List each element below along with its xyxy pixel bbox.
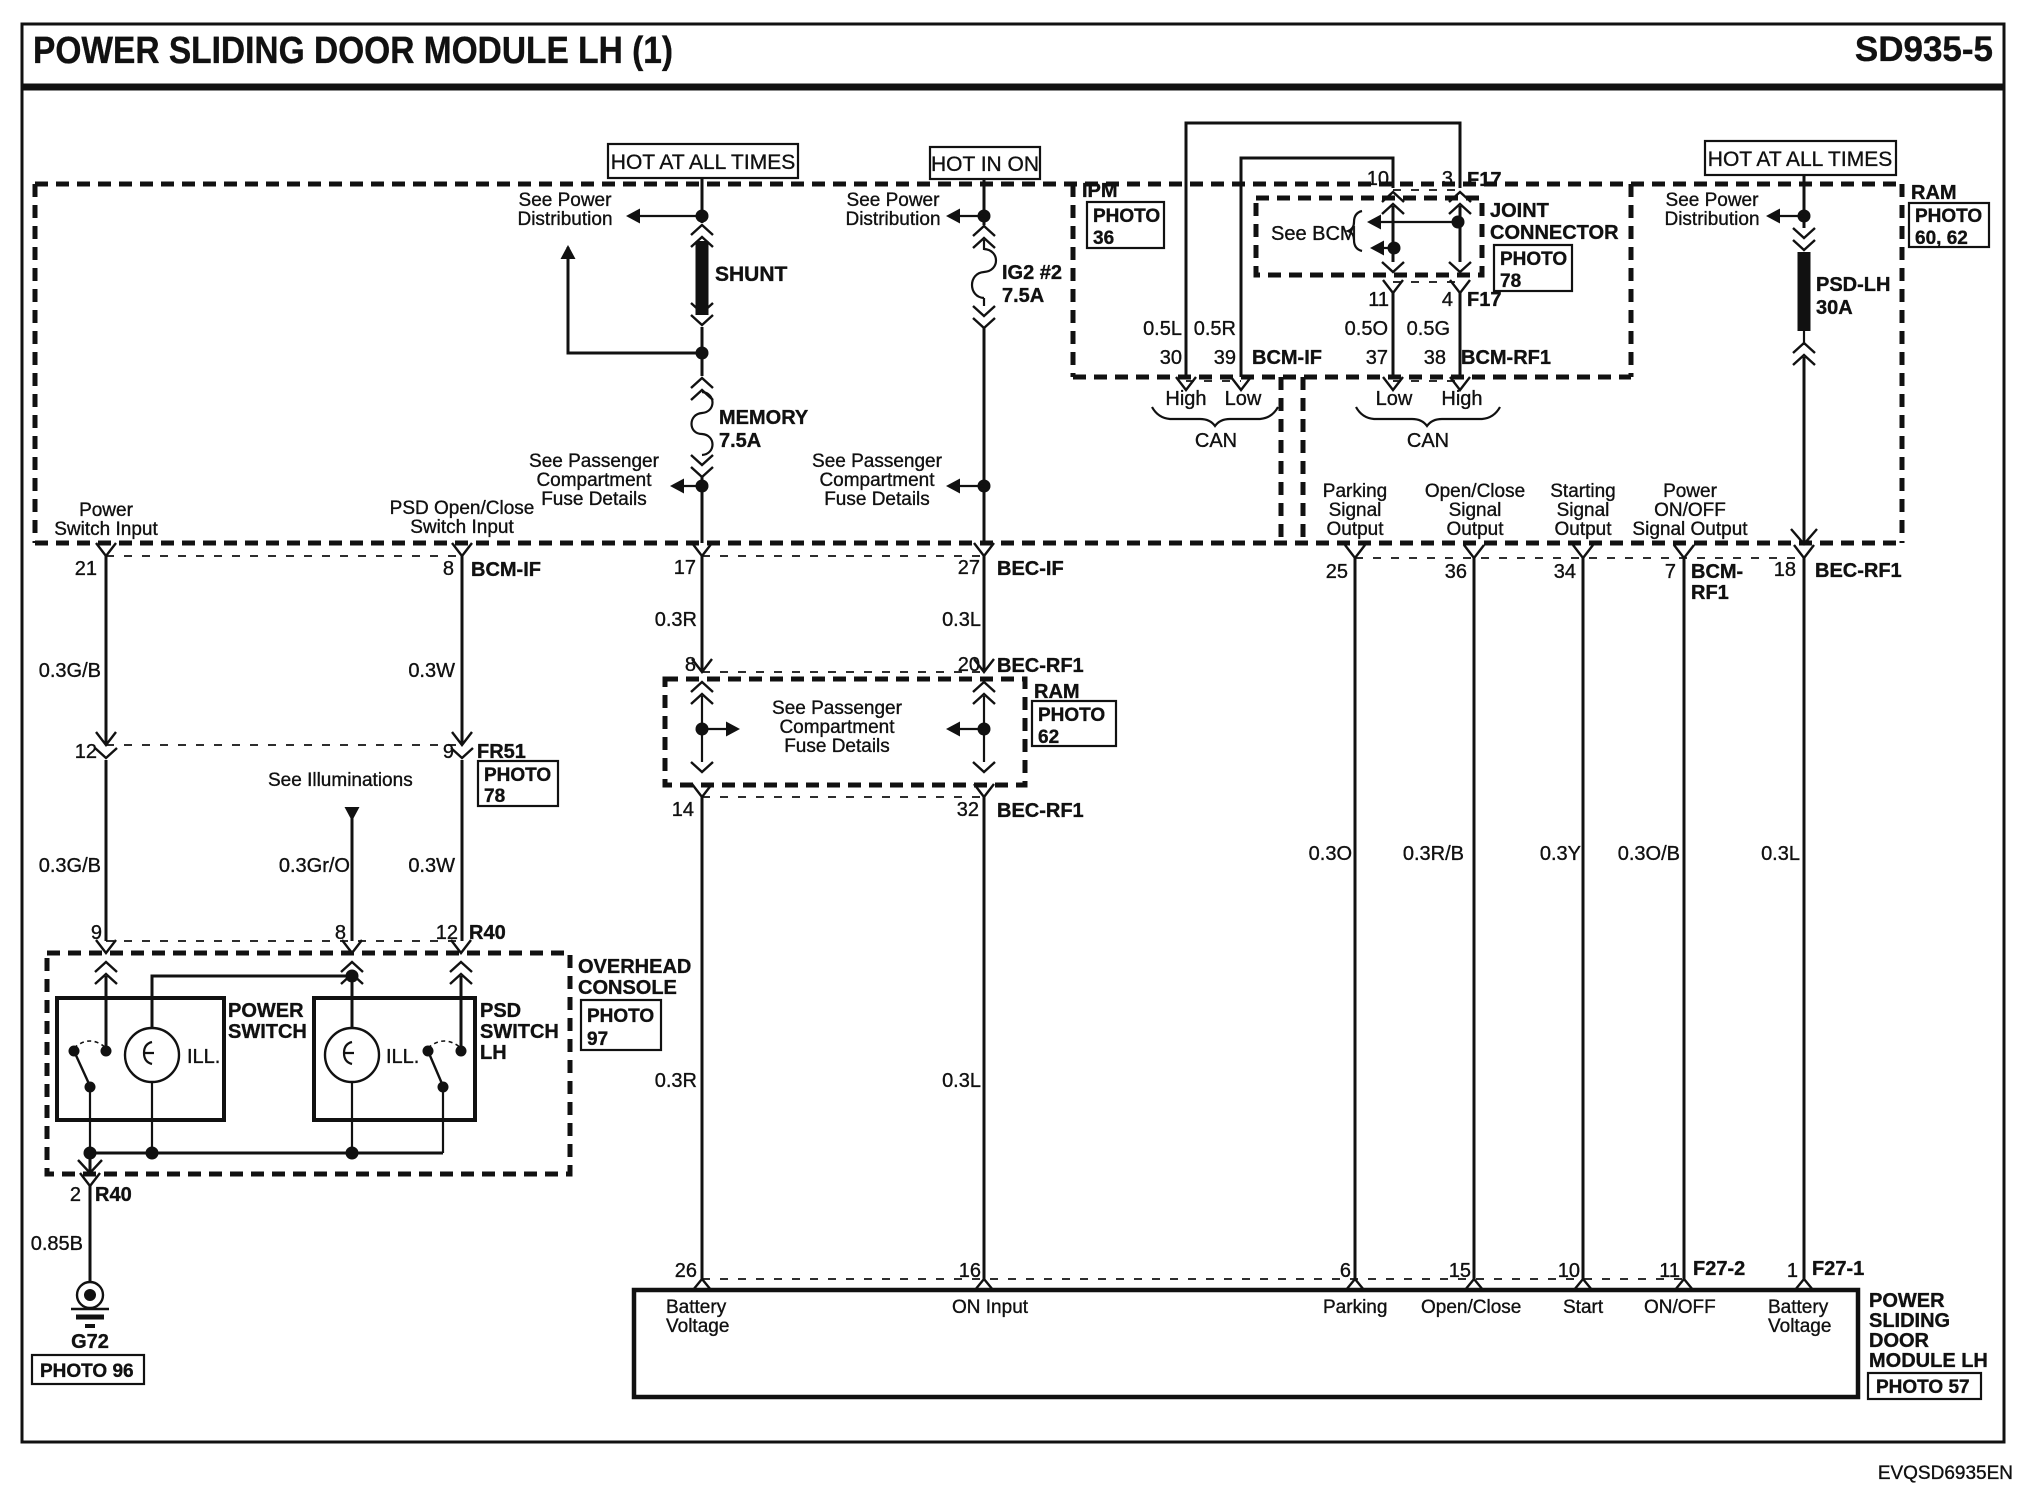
svg-text:BCM-RF1: BCM-RF1 — [1461, 347, 1551, 369]
svg-text:14: 14 — [672, 799, 694, 821]
svg-text:Signal Output: Signal Output — [1632, 519, 1748, 540]
svg-text:POWER: POWER — [1869, 1290, 1945, 1312]
svg-text:Parking: Parking — [1323, 1297, 1387, 1318]
svg-text:Power: Power — [79, 500, 134, 521]
svg-text:See Power: See Power — [519, 190, 613, 211]
svg-text:0.85B: 0.85B — [31, 1233, 83, 1255]
svg-text:PSD-LH: PSD-LH — [1816, 274, 1890, 296]
svg-text:HOT AT ALL TIMES: HOT AT ALL TIMES — [611, 151, 795, 174]
svg-text:7.5A: 7.5A — [719, 430, 761, 452]
svg-text:F27-2: F27-2 — [1693, 1258, 1745, 1280]
svg-text:High: High — [1165, 388, 1206, 410]
svg-text:32: 32 — [957, 799, 979, 821]
svg-text:R40: R40 — [95, 1184, 132, 1206]
svg-text:PHOTO: PHOTO — [1093, 206, 1160, 227]
svg-text:POWER: POWER — [228, 1000, 304, 1022]
svg-text:12: 12 — [436, 922, 458, 944]
svg-text:62: 62 — [1038, 727, 1059, 748]
svg-text:Compartment: Compartment — [819, 470, 935, 491]
svg-text:Switch Input: Switch Input — [54, 519, 158, 540]
svg-text:SWITCH: SWITCH — [480, 1021, 559, 1043]
svg-text:0.3G/B: 0.3G/B — [39, 855, 101, 877]
svg-text:39: 39 — [1214, 347, 1236, 369]
svg-text:IG2 #2: IG2 #2 — [1002, 262, 1062, 284]
svg-text:EVQSD6935EN: EVQSD6935EN — [1878, 1463, 2013, 1484]
svg-text:Signal: Signal — [1449, 500, 1502, 521]
svg-text:PSD: PSD — [480, 1000, 521, 1022]
svg-text:PHOTO: PHOTO — [1500, 249, 1567, 270]
svg-text:12: 12 — [75, 741, 97, 763]
svg-text:OVERHEAD: OVERHEAD — [578, 956, 691, 978]
svg-text:0.3O: 0.3O — [1309, 843, 1352, 865]
svg-text:R40: R40 — [469, 922, 506, 944]
svg-text:0.3W: 0.3W — [408, 855, 455, 877]
svg-text:Fuse Details: Fuse Details — [541, 489, 647, 510]
svg-text:See Passenger: See Passenger — [812, 451, 943, 472]
svg-text:Distribution: Distribution — [1664, 209, 1759, 230]
svg-text:Distribution: Distribution — [517, 209, 612, 230]
svg-text:POWER SLIDING DOOR MODULE LH (: POWER SLIDING DOOR MODULE LH (1) — [33, 30, 673, 72]
svg-text:See Power: See Power — [1666, 190, 1760, 211]
svg-text:See BCM: See BCM — [1271, 223, 1357, 245]
svg-text:30A: 30A — [1816, 297, 1853, 319]
svg-text:BCM-IF: BCM-IF — [471, 559, 541, 581]
svg-text:4: 4 — [1442, 289, 1453, 311]
svg-text:ON/OFF: ON/OFF — [1644, 1297, 1716, 1318]
svg-text:FR51: FR51 — [477, 741, 526, 763]
svg-text:SD935-5: SD935-5 — [1855, 30, 1993, 69]
svg-text:0.5G: 0.5G — [1407, 318, 1450, 340]
svg-text:0.5O: 0.5O — [1345, 318, 1388, 340]
svg-text:38: 38 — [1424, 347, 1446, 369]
svg-text:0.3L: 0.3L — [942, 609, 981, 631]
svg-text:Voltage: Voltage — [1768, 1316, 1831, 1337]
svg-text:Low: Low — [1225, 388, 1262, 410]
svg-text:ILL.: ILL. — [187, 1046, 220, 1068]
svg-text:Switch Input: Switch Input — [410, 517, 514, 538]
svg-text:BEC-RF1: BEC-RF1 — [997, 800, 1084, 822]
svg-text:17: 17 — [674, 557, 696, 579]
svg-text:Compartment: Compartment — [536, 470, 652, 491]
svg-text:Open/Close: Open/Close — [1421, 1297, 1521, 1318]
svg-text:CAN: CAN — [1195, 430, 1237, 452]
svg-text:0.3L: 0.3L — [1761, 843, 1800, 865]
svg-text:78: 78 — [484, 786, 505, 807]
svg-text:HOT AT ALL TIMES: HOT AT ALL TIMES — [1708, 148, 1892, 171]
svg-text:0.3R/B: 0.3R/B — [1403, 843, 1464, 865]
svg-text:6: 6 — [1340, 1260, 1351, 1282]
svg-text:2: 2 — [70, 1184, 81, 1206]
svg-text:PHOTO 96: PHOTO 96 — [40, 1361, 134, 1382]
svg-text:RAM: RAM — [1911, 182, 1957, 204]
svg-text:SHUNT: SHUNT — [715, 263, 788, 286]
svg-text:3: 3 — [1442, 168, 1453, 190]
svg-text:PHOTO: PHOTO — [1038, 705, 1105, 726]
svg-text:Fuse Details: Fuse Details — [824, 489, 930, 510]
svg-text:0.3G/B: 0.3G/B — [39, 660, 101, 682]
svg-text:Fuse Details: Fuse Details — [784, 736, 890, 757]
svg-text:11: 11 — [1368, 289, 1389, 311]
svg-text:Low: Low — [1376, 388, 1413, 410]
svg-text:0.5R: 0.5R — [1194, 318, 1236, 340]
svg-text:See Illuminations: See Illuminations — [268, 770, 413, 791]
svg-text:0.3L: 0.3L — [942, 1070, 981, 1092]
svg-text:0.3Gr/O: 0.3Gr/O — [279, 855, 350, 877]
svg-text:SWITCH: SWITCH — [228, 1021, 307, 1043]
svg-text:36: 36 — [1445, 561, 1467, 583]
svg-text:Battery: Battery — [1768, 1297, 1829, 1318]
svg-text:Output: Output — [1326, 519, 1384, 540]
svg-text:10: 10 — [1367, 168, 1389, 190]
svg-text:60, 62: 60, 62 — [1915, 228, 1968, 249]
svg-text:DOOR: DOOR — [1869, 1330, 1930, 1352]
svg-text:1: 1 — [1787, 1260, 1798, 1282]
svg-text:8: 8 — [685, 654, 696, 676]
svg-text:Power: Power — [1663, 481, 1718, 502]
svg-text:ILL.: ILL. — [386, 1046, 419, 1068]
svg-text:CAN: CAN — [1407, 430, 1449, 452]
svg-text:MEMORY: MEMORY — [719, 407, 809, 429]
svg-text:Battery: Battery — [666, 1297, 727, 1318]
svg-text:See Power: See Power — [847, 190, 941, 211]
svg-text:11: 11 — [1659, 1260, 1680, 1282]
svg-text:0.3O/B: 0.3O/B — [1618, 843, 1680, 865]
svg-text:G72: G72 — [71, 1331, 109, 1353]
svg-text:CONNECTOR: CONNECTOR — [1490, 222, 1619, 244]
svg-text:Compartment: Compartment — [779, 717, 895, 738]
svg-text:RAM: RAM — [1034, 681, 1080, 703]
svg-text:BEC-RF1: BEC-RF1 — [997, 655, 1084, 677]
svg-text:ON/OFF: ON/OFF — [1654, 500, 1726, 521]
svg-text:PHOTO: PHOTO — [1915, 206, 1982, 227]
svg-text:9: 9 — [443, 741, 454, 763]
svg-text:16: 16 — [959, 1260, 981, 1282]
svg-text:27: 27 — [958, 557, 980, 579]
svg-text:PHOTO: PHOTO — [587, 1006, 654, 1027]
svg-text:F27-1: F27-1 — [1812, 1258, 1864, 1280]
svg-text:20: 20 — [958, 654, 980, 676]
svg-text:See Passenger: See Passenger — [772, 698, 903, 719]
svg-text:MODULE LH: MODULE LH — [1869, 1350, 1988, 1372]
svg-text:BEC-IF: BEC-IF — [997, 558, 1064, 580]
svg-text:F17: F17 — [1467, 289, 1501, 311]
svg-text:Starting: Starting — [1550, 481, 1615, 502]
svg-text:Output: Output — [1554, 519, 1612, 540]
svg-text:LH: LH — [480, 1042, 507, 1064]
svg-text:34: 34 — [1554, 561, 1576, 583]
svg-text:BCM-: BCM- — [1691, 561, 1743, 583]
svg-text:F17: F17 — [1467, 169, 1501, 191]
svg-text:25: 25 — [1326, 561, 1348, 583]
svg-text:7: 7 — [1665, 561, 1676, 583]
svg-text:Voltage: Voltage — [666, 1316, 729, 1337]
svg-text:37: 37 — [1366, 347, 1388, 369]
svg-text:8: 8 — [443, 558, 454, 580]
svg-text:High: High — [1441, 388, 1482, 410]
svg-text:See Passenger: See Passenger — [529, 451, 660, 472]
svg-text:BCM-IF: BCM-IF — [1252, 347, 1322, 369]
svg-text:78: 78 — [1500, 271, 1521, 292]
svg-text:36: 36 — [1093, 228, 1114, 249]
svg-text:97: 97 — [587, 1029, 608, 1050]
svg-text:7.5A: 7.5A — [1002, 285, 1044, 307]
svg-text:Start: Start — [1563, 1297, 1604, 1318]
svg-text:8: 8 — [335, 922, 346, 944]
svg-text:HOT IN ON: HOT IN ON — [931, 153, 1039, 176]
svg-text:0.5L: 0.5L — [1143, 318, 1182, 340]
svg-text:PHOTO 57: PHOTO 57 — [1876, 1377, 1970, 1398]
svg-text:Signal: Signal — [1557, 500, 1610, 521]
svg-text:Signal: Signal — [1329, 500, 1382, 521]
svg-text:0.3R: 0.3R — [655, 1070, 697, 1092]
svg-text:PHOTO: PHOTO — [484, 765, 551, 786]
svg-text:SLIDING: SLIDING — [1869, 1310, 1950, 1332]
svg-text:30: 30 — [1160, 347, 1182, 369]
svg-text:0.3W: 0.3W — [408, 660, 455, 682]
svg-text:Parking: Parking — [1323, 481, 1387, 502]
svg-text:ON Input: ON Input — [952, 1297, 1029, 1318]
svg-text:IPM: IPM — [1082, 180, 1118, 202]
svg-text:Distribution: Distribution — [845, 209, 940, 230]
svg-text:18: 18 — [1774, 559, 1796, 581]
svg-text:26: 26 — [675, 1260, 697, 1282]
svg-text:0.3Y: 0.3Y — [1540, 843, 1581, 865]
svg-text:Open/Close: Open/Close — [1425, 481, 1525, 502]
svg-text:15: 15 — [1449, 1260, 1471, 1282]
svg-text:10: 10 — [1558, 1260, 1580, 1282]
svg-text:BEC-RF1: BEC-RF1 — [1815, 560, 1902, 582]
svg-text:21: 21 — [75, 558, 97, 580]
svg-text:PSD Open/Close: PSD Open/Close — [390, 498, 535, 519]
svg-text:0.3R: 0.3R — [655, 609, 697, 631]
svg-text:RF1: RF1 — [1691, 582, 1729, 604]
svg-text:JOINT: JOINT — [1490, 200, 1549, 222]
svg-text:Output: Output — [1446, 519, 1504, 540]
svg-text:CONSOLE: CONSOLE — [578, 977, 677, 999]
